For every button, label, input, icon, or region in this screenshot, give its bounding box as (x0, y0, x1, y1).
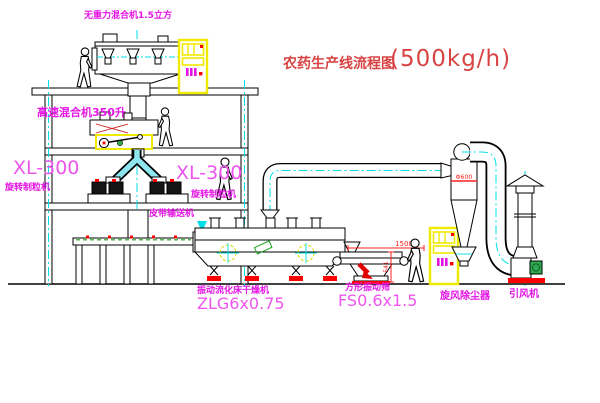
control-cabinet-right (430, 228, 458, 284)
label-fan: 引风机 (509, 290, 539, 300)
indicator-dot (451, 233, 454, 236)
granulator-left (88, 177, 130, 203)
cyclone-diameter-dim: Φ600 (456, 174, 473, 181)
label-granulator-left-name: 旋转制粒机 (5, 184, 50, 193)
control-cabinet-top (179, 40, 207, 93)
label-granulator-right-model: XL-300 (176, 164, 242, 183)
exhaust-stack (507, 175, 543, 258)
process-flow-diagram: 1500 541 Φ600 (0, 0, 600, 403)
label-granulator-left-model: XL-300 (13, 159, 79, 178)
label-screen-model: FS0.6x1.5 (338, 293, 417, 309)
dryer-supports (207, 266, 337, 281)
label-granulator-right-name: 旋转制粒机 (191, 191, 236, 200)
screen-height-dim: 541 (383, 261, 390, 273)
diagram-capacity: (500kg/h) (390, 48, 511, 71)
diagram-title: 农药生产线流程图 (283, 57, 395, 71)
indicator-dot (450, 262, 453, 265)
fan-motor (530, 261, 542, 274)
fluid-bed-dryer (195, 218, 360, 281)
worker-figure (77, 48, 92, 87)
indicator-dot (199, 72, 202, 75)
label-dryer-model: ZLG6x0.75 (197, 296, 285, 312)
label-high-speed-mixer: 高速混合机350升 (37, 107, 126, 118)
screen-length-dim: 1500 (395, 240, 413, 248)
vibrating-screen (333, 252, 408, 284)
label-cyclone: 旋风除尘器 (440, 292, 490, 302)
control-squiggle-icon (437, 258, 448, 266)
belt-conveyor (73, 210, 193, 284)
indicator-dot (200, 45, 203, 48)
control-squiggle-icon (186, 68, 197, 76)
label-gravity-mixer: 无重力混合机1.5立方 (84, 12, 172, 21)
worker-figure (158, 108, 172, 146)
induced-draft-fan (508, 258, 545, 283)
rain-cap-icon (507, 175, 543, 186)
label-belt-conveyor: 皮带输送机 (149, 210, 194, 219)
motor-dot (117, 140, 122, 145)
